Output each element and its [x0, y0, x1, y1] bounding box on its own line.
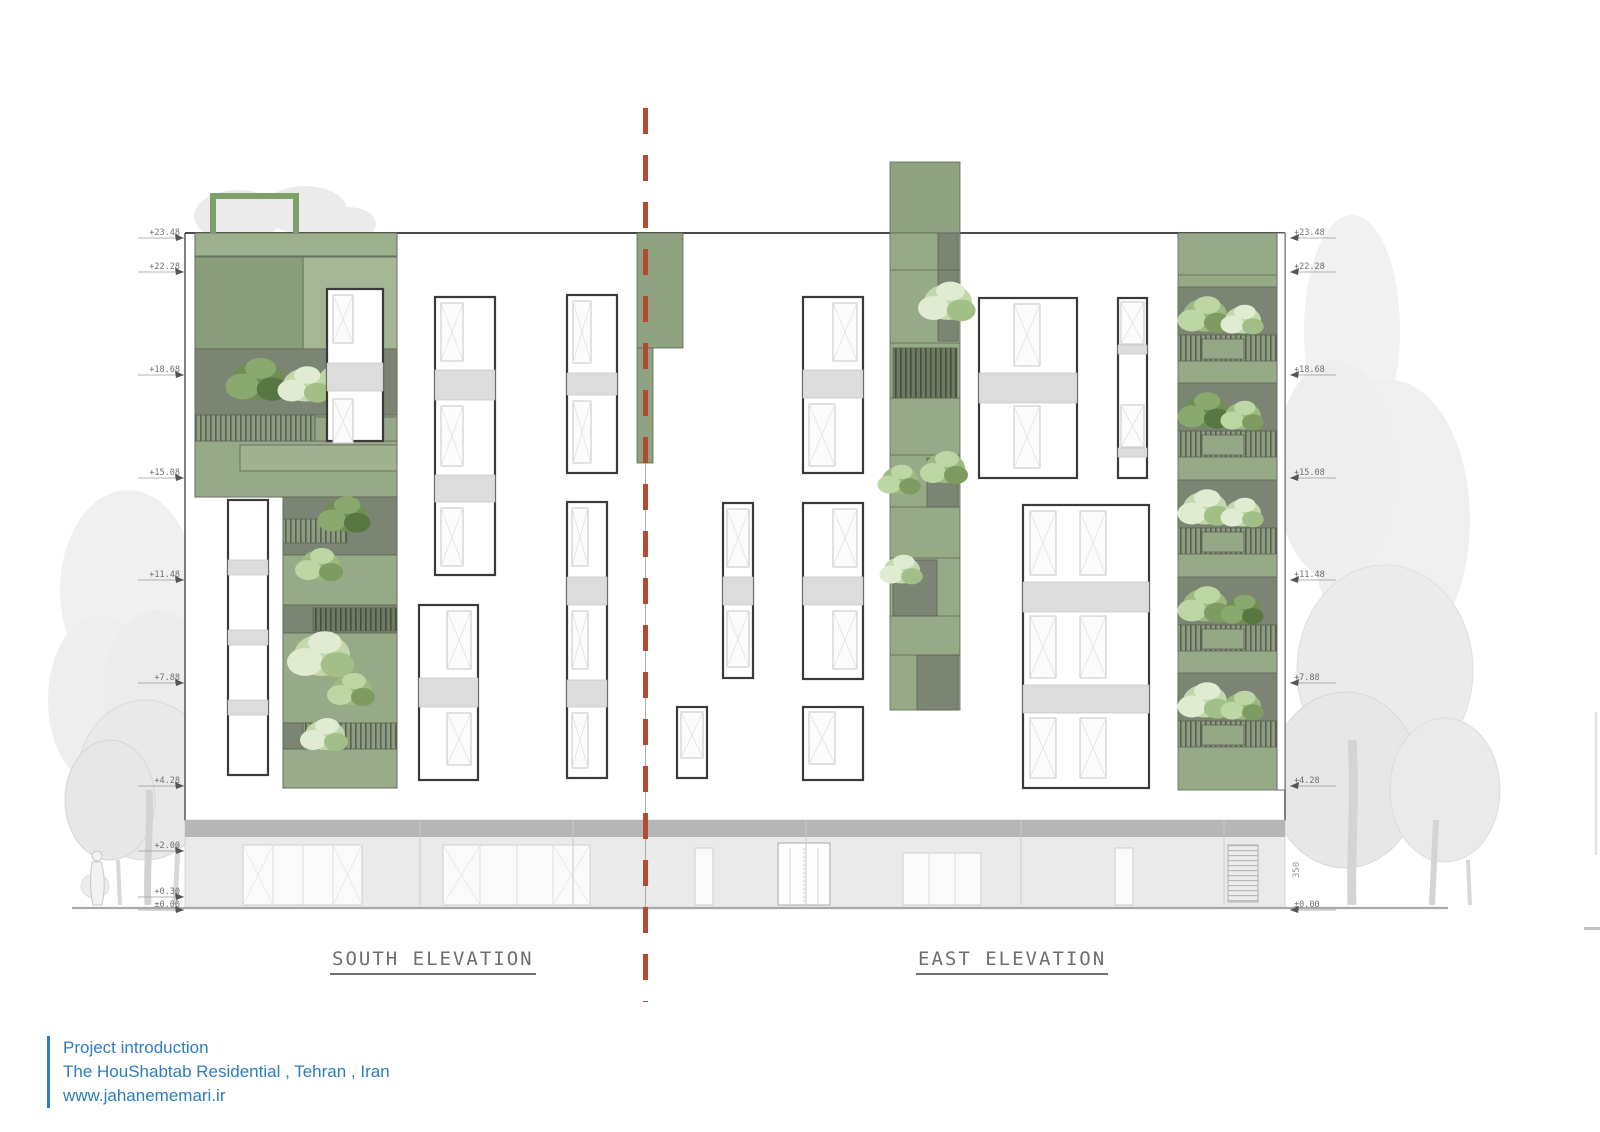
green-panel — [240, 445, 397, 471]
level-label: ±0.00 — [154, 900, 180, 910]
louver-shutter — [1228, 845, 1258, 902]
elevation-drawing-svg: +23.48+22.28+18.68+15.08+11.48+7.88+4.28… — [0, 0, 1600, 1132]
footer-project-info: Project introduction The HouShabtab Resi… — [47, 1036, 390, 1108]
level-label: ±0.00 — [1294, 900, 1320, 910]
spandrel-panel — [419, 678, 478, 707]
level-label: +0.30 — [154, 887, 180, 897]
green-panel — [1202, 532, 1244, 552]
green-panel — [890, 162, 960, 233]
elevation-sheet: +23.48+22.28+18.68+15.08+11.48+7.88+4.28… — [0, 0, 1600, 1132]
green-panel — [1202, 339, 1244, 359]
spandrel-panel — [1023, 685, 1149, 713]
storefront-glass — [1115, 848, 1133, 905]
green-panel — [1202, 629, 1244, 649]
green-panel — [1202, 435, 1244, 455]
spandrel-panel — [723, 577, 753, 605]
green-panel — [283, 723, 303, 749]
title-east-elevation: EAST ELEVATION — [916, 948, 1108, 975]
spandrel-panel — [435, 475, 495, 502]
spandrel-panel — [979, 373, 1077, 403]
spandrel-panel — [567, 373, 617, 395]
footer-line-1: Project introduction — [63, 1036, 390, 1060]
spandrel-panel — [1023, 582, 1149, 612]
level-label: +2.00 — [154, 841, 180, 851]
railing-band — [313, 608, 397, 631]
level-label: +22.28 — [1294, 262, 1325, 272]
dimension-350: 350 — [1292, 862, 1302, 878]
storefront-glass — [695, 848, 713, 905]
level-label: +4.28 — [154, 776, 180, 786]
footer-line-3: www.jahanememari.ir — [63, 1084, 390, 1108]
level-label: +11.48 — [1294, 570, 1325, 580]
green-panel — [1202, 725, 1244, 745]
storefront-glass — [903, 853, 981, 905]
level-label: +23.48 — [1294, 228, 1325, 238]
level-label: +15.08 — [1294, 468, 1325, 478]
spandrel-panel — [803, 370, 863, 398]
green-panel — [195, 233, 397, 256]
spandrel-panel — [228, 700, 268, 715]
level-label: +18.68 — [1294, 365, 1325, 375]
spandrel-panel — [327, 363, 383, 391]
spandrel-panel — [803, 577, 863, 605]
spandrel-panel — [567, 577, 607, 605]
spandrel-panel — [1118, 345, 1147, 354]
spandrel-panel — [228, 630, 268, 645]
level-label: +15.08 — [149, 468, 180, 478]
spandrel-panel — [1118, 448, 1147, 457]
railing-band — [195, 415, 315, 441]
railing-band — [893, 348, 957, 398]
footer-line-2: The HouShabtab Residential , Tehran , Ir… — [63, 1060, 390, 1084]
level-label: +18.68 — [149, 365, 180, 375]
title-south-elevation: SOUTH ELEVATION — [330, 948, 536, 975]
level-label: +22.28 — [149, 262, 180, 272]
edge-pilaster — [1277, 233, 1285, 790]
green-panel — [917, 655, 958, 710]
spandrel-panel — [228, 560, 268, 575]
spandrel-panel — [567, 680, 607, 707]
green-panel — [195, 257, 303, 349]
right-edge-mark — [1584, 927, 1600, 930]
tree-trunk — [148, 790, 150, 905]
spandrel-panel — [435, 370, 495, 400]
green-panel — [283, 749, 397, 788]
level-label: +7.88 — [154, 673, 180, 683]
level-label: +7.88 — [1294, 673, 1320, 683]
level-label: +23.48 — [149, 228, 180, 238]
level-label: +4.28 — [1294, 776, 1320, 786]
level-label: +11.48 — [149, 570, 180, 580]
